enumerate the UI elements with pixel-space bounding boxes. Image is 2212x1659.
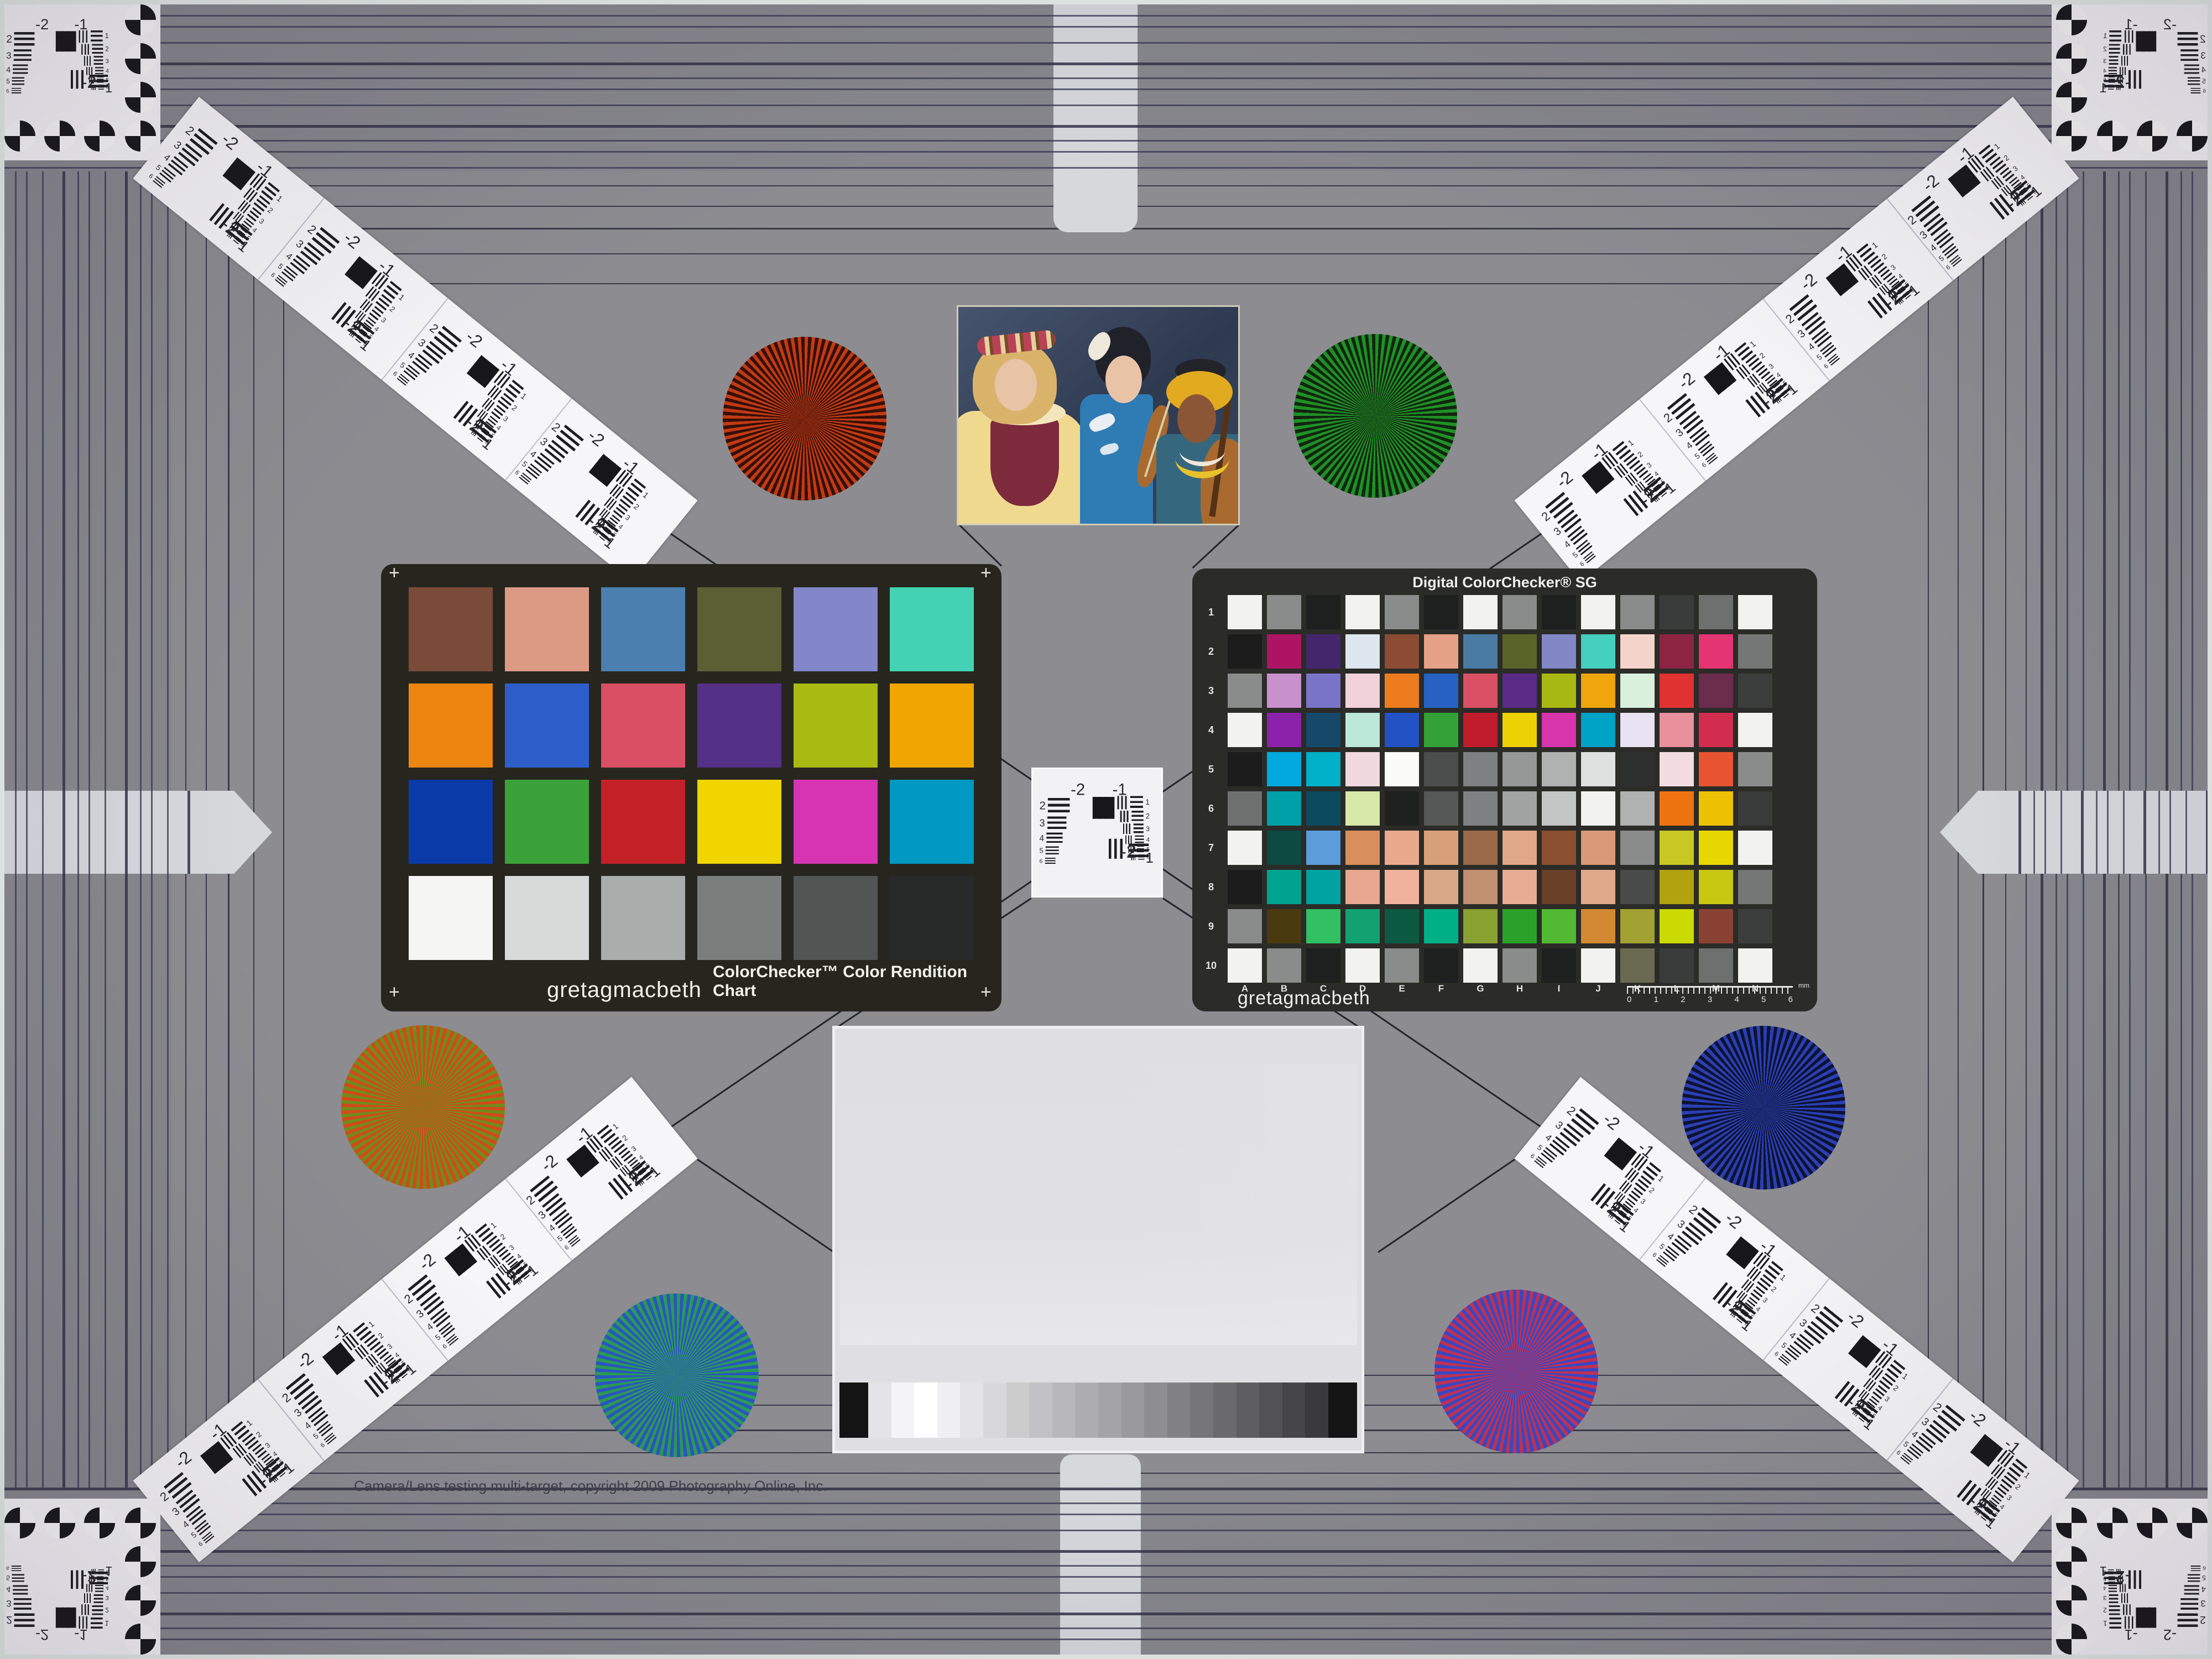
sg-patch [1385, 634, 1419, 669]
sg-patch [1699, 831, 1733, 865]
sg-patch [1542, 752, 1576, 786]
sg-patch [1581, 713, 1615, 747]
usaf-resolution-target: -2 -1 23456 123456 -2 1 [2096, 1568, 2208, 1640]
sg-patch [1581, 831, 1615, 865]
tri-bar-icon [14, 1597, 32, 1610]
sg-patch [1424, 870, 1458, 904]
usaf-element-row: 4 [2177, 64, 2205, 75]
ruler-number: 1 [1654, 995, 1658, 1004]
cc-patch [409, 587, 493, 671]
grayscale-step [937, 1383, 961, 1438]
black-square-icon [2136, 31, 2156, 51]
usaf-element-label: 3 [6, 1598, 11, 1609]
usaf-element-label: 1 [105, 81, 112, 96]
sg-patch [1385, 713, 1419, 747]
grayscale-step [1237, 1383, 1260, 1438]
usaf-element-label: 1 [1656, 1174, 1666, 1184]
ruler-number: 5 [1761, 995, 1766, 1004]
usaf-group-label: -2 [35, 1626, 49, 1643]
sg-patch [1463, 948, 1498, 983]
usaf-element-label: 3 [624, 513, 632, 522]
registration-mark-icon [2097, 1507, 2128, 1538]
cc-patch [794, 876, 878, 960]
usaf-element-label: 6 [441, 1343, 448, 1350]
usaf-element-row: 5 [6, 1573, 34, 1582]
grayscale-step [1052, 1383, 1076, 1438]
sg-patch [1306, 674, 1340, 708]
sg-row-label: 7 [1200, 831, 1222, 865]
tri-bar-icon [2177, 1612, 2198, 1627]
sg-patch [1267, 791, 1301, 826]
grayscale-step [1305, 1383, 1328, 1438]
tri-bar-icon [1117, 796, 1128, 809]
tri-bar-icon [2122, 1604, 2131, 1615]
registration-mark-icon [125, 82, 156, 113]
cc-patch [601, 587, 685, 671]
sg-patch-grid [1228, 595, 1772, 983]
registration-mark-icon [2097, 121, 2128, 152]
tri-bar-icon [2184, 64, 2199, 75]
tri-bar-icon [1133, 823, 1143, 833]
sg-patch [1738, 752, 1772, 786]
ruler-unit: mm [1798, 982, 1809, 989]
usaf-element-label: 6 [319, 1441, 326, 1449]
sg-patch [1228, 870, 1262, 904]
usaf-element-row: 2 [6, 1612, 34, 1627]
sg-row-labels: 12345678910 [1200, 595, 1222, 983]
tri-bar-icon [2122, 44, 2131, 55]
sweep-fade-overlay [839, 1064, 1357, 1345]
colorchecker-patch-grid [409, 587, 974, 960]
usaf-element-label: 6 [197, 1540, 204, 1548]
sg-patch [1306, 752, 1340, 786]
usaf-element-row: 1 [79, 1616, 109, 1629]
cc-patch [890, 684, 974, 768]
frequency-bars-bottom [839, 1350, 1357, 1373]
cc-patch [697, 684, 781, 768]
usaf-element-label: 1 [105, 33, 109, 40]
cc-patch [890, 780, 974, 864]
usaf-element-row: 3 [84, 1594, 109, 1603]
chart-outer-edge [0, 0, 4, 1659]
sg-patch [1542, 870, 1576, 904]
tri-bar-icon [2109, 1616, 2121, 1629]
sg-patch [1267, 674, 1301, 708]
sg-patch [1620, 909, 1655, 943]
sg-patch [1542, 909, 1576, 943]
usaf-group-label: -2 [1919, 171, 1943, 196]
sg-patch [1542, 831, 1576, 865]
sg-patch [1463, 595, 1498, 629]
usaf-element-label: 2 [6, 1613, 12, 1625]
tri-bar-icon [91, 30, 103, 43]
tri-bar-icon [14, 49, 32, 62]
usaf-element-label: 2 [2103, 45, 2107, 53]
registration-mark-icon [125, 43, 156, 74]
siemens-star-green [1293, 334, 1457, 498]
usaf-left-elements: 23456 [401, 1274, 471, 1350]
usaf-group-label: -2 [1721, 1208, 1745, 1233]
sg-patch [1306, 831, 1340, 865]
usaf-element-label: 3 [106, 57, 109, 64]
usaf-element-label: 4 [6, 1585, 11, 1594]
sg-title: Digital ColorChecker® SG [1192, 574, 1817, 591]
center-resolution-target: -2 -1 23456 123456 -2 1 [1031, 768, 1163, 898]
tri-bar-icon [2180, 1597, 2198, 1610]
sg-patch [1503, 674, 1537, 708]
sg-patch [1306, 870, 1340, 904]
usaf-element-row: 2 [6, 32, 34, 47]
usaf-element-row: 6 [2177, 88, 2205, 94]
sg-patch [1306, 791, 1340, 826]
tri-bar-icon [91, 1616, 103, 1629]
sg-patch [1738, 948, 1772, 983]
usaf-element-label: 2 [1647, 1186, 1656, 1196]
sg-patch [1503, 752, 1537, 786]
sg-patch [1503, 791, 1537, 826]
tri-bar-icon [2124, 30, 2133, 43]
usaf-group-label: -2 [1553, 467, 1577, 492]
sg-patch [1306, 948, 1340, 983]
usaf-element-label: 4 [2103, 1585, 2106, 1592]
usaf-element-row: 1 [2103, 30, 2133, 43]
usaf-element-label: 6 [6, 88, 9, 94]
siemens-star-blue [1682, 1026, 1845, 1190]
tri-bar-icon [81, 1604, 90, 1615]
ruler-number: 2 [1681, 995, 1685, 1004]
sg-patch [1581, 870, 1615, 904]
sg-patch [1660, 752, 1694, 786]
sg-row-label: 2 [1200, 634, 1222, 669]
usaf-element-row: 1 [1117, 796, 1150, 809]
sg-patch [1345, 595, 1380, 629]
sg-patch [1699, 595, 1733, 629]
grayscale-step [914, 1383, 937, 1438]
sg-patch [1581, 634, 1615, 669]
sg-patch [1542, 948, 1576, 983]
cc-patch [505, 876, 589, 960]
usaf-element-label: 3 [2103, 1595, 2106, 1602]
sg-patch [1503, 948, 1537, 983]
sg-patch [1699, 909, 1733, 943]
sg-column-label: J [1581, 983, 1615, 994]
usaf-element-label: 5 [6, 1574, 10, 1582]
sg-patch [1620, 831, 1655, 865]
usaf-element-label: 3 [258, 217, 266, 226]
tri-bar-icon [2109, 56, 2118, 65]
usaf-element-label: 3 [106, 1595, 109, 1602]
usaf-element-label: 6 [1039, 858, 1042, 864]
grayscale-step [1121, 1383, 1145, 1438]
registration-mark-icon [44, 121, 75, 152]
usaf-element-label: 3 [2005, 1493, 2013, 1502]
usaf-element-label: 1 [2022, 1470, 2032, 1480]
sg-patch [1267, 634, 1301, 669]
corner-target-topleft: -2 -1 23456 123456 -2 1 [0, 0, 160, 160]
grayscale-step [1213, 1383, 1237, 1438]
cc-patch [601, 876, 685, 960]
sg-patch [1699, 870, 1733, 904]
cc-patch [601, 780, 685, 864]
registration-mark-icon [2056, 1585, 2087, 1616]
usaf-element-label: 6 [2203, 1565, 2205, 1571]
tri-bar-icon [2109, 1604, 2120, 1615]
sg-patch [1463, 713, 1498, 747]
ruler-number: 3 [1708, 995, 1712, 1004]
crosshair-mark-icon: + [389, 987, 400, 998]
tri-bar-icon [2121, 56, 2128, 65]
chart-outer-edge [0, 1655, 2212, 1659]
usaf-element-label: 6 [2203, 88, 2205, 94]
usaf-element-label: 2 [1039, 799, 1045, 812]
usaf-group-label: -2 [1797, 270, 1821, 295]
sg-patch [1345, 948, 1380, 983]
usaf-element-label: 4 [2201, 1585, 2206, 1594]
usaf-element-label: 5 [1039, 847, 1043, 855]
tri-bar-icon [2191, 1565, 2201, 1571]
usaf-element-row: 3 [2177, 49, 2205, 62]
sg-patch [1385, 870, 1419, 904]
sg-row-label: 3 [1200, 674, 1222, 708]
registration-mark-icon [2056, 43, 2087, 74]
grayscale-step-wedge [839, 1383, 1357, 1438]
usaf-element-label: 3 [502, 414, 510, 423]
registration-mark-icon [2056, 1624, 2087, 1655]
sg-patch [1581, 752, 1615, 786]
usaf-element-label: 3 [1767, 362, 1775, 371]
sg-patch [1345, 909, 1380, 943]
cc-patch [409, 684, 493, 768]
grayscale-step [1075, 1383, 1098, 1438]
usaf-group-label: -2 [1965, 1406, 1990, 1431]
tri-bar-icon [93, 56, 103, 65]
copyright-text: Camera/Lens testing multi-target, copyri… [354, 1478, 827, 1495]
tri-bar-icon [14, 32, 35, 47]
usaf-element-label: 6 [1700, 461, 1708, 469]
black-square-icon [2136, 1608, 2156, 1628]
usaf-left-elements: 23456 [270, 221, 340, 297]
cc-patch [409, 876, 493, 960]
usaf-element-label: 5 [2202, 1574, 2206, 1582]
black-square-icon [56, 1608, 76, 1628]
photo-figure-left-face [995, 359, 1037, 411]
sg-patch [1424, 948, 1458, 983]
sg-patch [1660, 674, 1694, 708]
usaf-resolution-target: -2 -1 23456 123456 -2 1 [4, 1568, 116, 1640]
sg-patch [1228, 634, 1262, 669]
usaf-group-label: -2 [538, 1151, 562, 1176]
sg-patch [1306, 713, 1340, 747]
usaf-element-label: 4 [1039, 833, 1044, 843]
grayscale-step [983, 1383, 1006, 1438]
usaf-group-label: -2 [293, 1349, 317, 1374]
usaf-element-label: 4 [6, 65, 11, 75]
registration-mark-icon [2177, 121, 2208, 152]
tri-bar-icon [1045, 858, 1055, 864]
grayscale-step [1144, 1383, 1167, 1438]
registration-tab-left [0, 791, 272, 874]
cc-patch [697, 876, 781, 960]
ruler-number: 6 [1788, 995, 1793, 1004]
registration-mark-icon [2056, 4, 2087, 35]
usaf-element-label: 1 [1145, 850, 1153, 866]
usaf-element-label: 3 [1039, 817, 1045, 829]
usaf-element-label: 3 [1639, 1197, 1647, 1206]
usaf-element-label: 1 [2100, 1563, 2107, 1578]
usaf-element-label: 2 [105, 1606, 109, 1614]
tri-bar-icon [2188, 77, 2200, 86]
usaf-element-row: 5 [1039, 847, 1070, 855]
registration-mark-icon [2056, 121, 2087, 152]
usaf-element-row: 3 [2177, 1597, 2205, 1610]
usaf-element-label: 1 [1778, 1273, 1787, 1283]
sg-patch [1660, 948, 1694, 983]
sg-row-label: 1 [1200, 595, 1222, 629]
sg-patch [1385, 831, 1419, 865]
sg-patch [1424, 674, 1458, 708]
registration-mark-icon [4, 121, 35, 152]
usaf-element-row: 3 [84, 56, 109, 65]
sg-column-label: G [1463, 983, 1498, 994]
sg-patch [1738, 595, 1772, 629]
usaf-element-row: 3 [6, 1597, 34, 1610]
usaf-element-row: 2 [81, 1604, 109, 1615]
sg-patch [1738, 831, 1772, 865]
tri-bar-icon [93, 1594, 103, 1603]
sg-patch [1738, 713, 1772, 747]
usaf-element-label: 3 [1761, 1296, 1770, 1305]
colorchecker-brand: gretagmacbeth [547, 978, 702, 1003]
sg-patch [1345, 831, 1380, 865]
tri-bar-icon [2124, 1616, 2133, 1629]
sg-patch [1660, 791, 1694, 826]
tri-bar-icon [1046, 833, 1062, 844]
usaf-resolution-target: -2 -1 23456 123456 -2 1 [2096, 19, 2208, 91]
sg-patch [1738, 634, 1772, 669]
usaf-element-label: 6 [6, 1565, 9, 1571]
sg-patch [1385, 948, 1419, 983]
usaf-element-label: 3 [2200, 50, 2205, 61]
usaf-left-elements: 23456 [1039, 798, 1070, 864]
sg-patch [1345, 674, 1380, 708]
usaf-element-label: 4 [106, 67, 109, 74]
tri-bar-icon [14, 1612, 35, 1627]
usaf-element-row: 1 [2103, 1616, 2133, 1629]
usaf-group-label: -2 [2163, 1626, 2177, 1643]
usaf-group-label: -2 [1674, 368, 1699, 393]
tri-bar-icon [92, 44, 103, 55]
sg-patch [1620, 713, 1655, 747]
cc-patch [505, 684, 589, 768]
usaf-group-label: -2 [340, 228, 364, 253]
usaf-left-elements: 23456 [392, 320, 462, 396]
tri-bar-icon [1130, 796, 1143, 809]
tri-bar-icon [2177, 32, 2198, 47]
usaf-group-label: -2 [81, 1567, 96, 1585]
usaf-group-label: -2 [1120, 842, 1136, 863]
sg-patch [1463, 674, 1498, 708]
usaf-element-row: 4 [6, 1584, 34, 1594]
siemens-star-orange [341, 1025, 505, 1189]
tri-bar-icon [79, 1616, 88, 1629]
grayscale-step [839, 1383, 868, 1438]
sg-patch [1306, 634, 1340, 669]
usaf-element-row: 2 [2177, 32, 2205, 47]
usaf-element-row: 5 [6, 77, 34, 86]
sg-patch [1228, 948, 1262, 983]
usaf-group-label: -2 [2116, 1567, 2131, 1585]
grayscale-step [1098, 1383, 1121, 1438]
frequency-sweep-panel [832, 1026, 1364, 1453]
tri-bar-icon [12, 88, 22, 94]
usaf-element-label: 2 [388, 305, 397, 314]
usaf-element-label: 2 [6, 33, 12, 45]
usaf-element-label: 5 [2202, 77, 2206, 85]
cc-patch [794, 780, 878, 864]
sg-patch [1228, 831, 1262, 865]
registration-tab-right [1940, 791, 2212, 874]
sg-patch [1463, 870, 1498, 904]
usaf-element-label: 3 [2200, 1598, 2205, 1609]
usaf-left-elements: 23456 [2177, 32, 2205, 94]
usaf-element-row: 6 [6, 88, 34, 94]
colorchecker-title: ColorChecker™ Color Rendition Chart [713, 963, 1001, 1000]
usaf-element-row: 6 [1039, 858, 1070, 864]
chart-outer-edge [2208, 0, 2212, 1659]
registration-mark-icon [125, 4, 156, 35]
sg-patch [1660, 870, 1694, 904]
usaf-element-label: 2 [2103, 1606, 2107, 1614]
sg-patch [1424, 791, 1458, 826]
tri-bar-icon [95, 67, 103, 75]
sg-patch [1228, 752, 1262, 786]
ruler-number: 4 [1734, 995, 1739, 1004]
usaf-element-label: 3 [1884, 1394, 1892, 1403]
sg-brand: gretagmacbeth [1238, 988, 1370, 1009]
sg-patch [1228, 909, 1262, 943]
usaf-element-label: 4 [106, 1585, 109, 1592]
usaf-element-label: 2 [105, 45, 109, 53]
siemens-star-red [723, 337, 886, 500]
sg-patch [1306, 595, 1340, 629]
usaf-element-label: 4 [2201, 65, 2206, 75]
sg-patch [1620, 752, 1655, 786]
usaf-element-label: 1 [397, 293, 406, 303]
tri-bar-icon [1131, 811, 1143, 822]
sg-patch [1738, 791, 1772, 826]
sg-patch [1228, 674, 1262, 708]
usaf-resolution-target: -2 -1 23456 123456 -2 1 [4, 19, 116, 91]
sg-patch [1660, 634, 1694, 669]
grayscale-step [1190, 1383, 1213, 1438]
cc-patch [505, 587, 589, 671]
usaf-group-label: -2 [1599, 1109, 1623, 1134]
frequency-bars-top [839, 1033, 1357, 1063]
tri-bar-icon [12, 1565, 22, 1571]
siemens-star-teal [595, 1293, 759, 1457]
tri-bar-icon [1123, 823, 1131, 833]
ruler-ticks [1627, 986, 1793, 994]
colorchecker-classic-chart: gretagmacbeth ColorChecker™ Color Rendit… [381, 564, 1001, 1011]
grayscale-step [1259, 1383, 1282, 1438]
usaf-element-label: 1 [105, 1563, 112, 1578]
usaf-group-label: -2 [462, 327, 486, 352]
tri-bar-icon [2109, 44, 2120, 55]
sg-patch [1424, 831, 1458, 865]
crosshair-mark-icon: + [980, 987, 992, 998]
usaf-element-label: 6 [1578, 560, 1585, 568]
sg-patch [1660, 713, 1694, 747]
